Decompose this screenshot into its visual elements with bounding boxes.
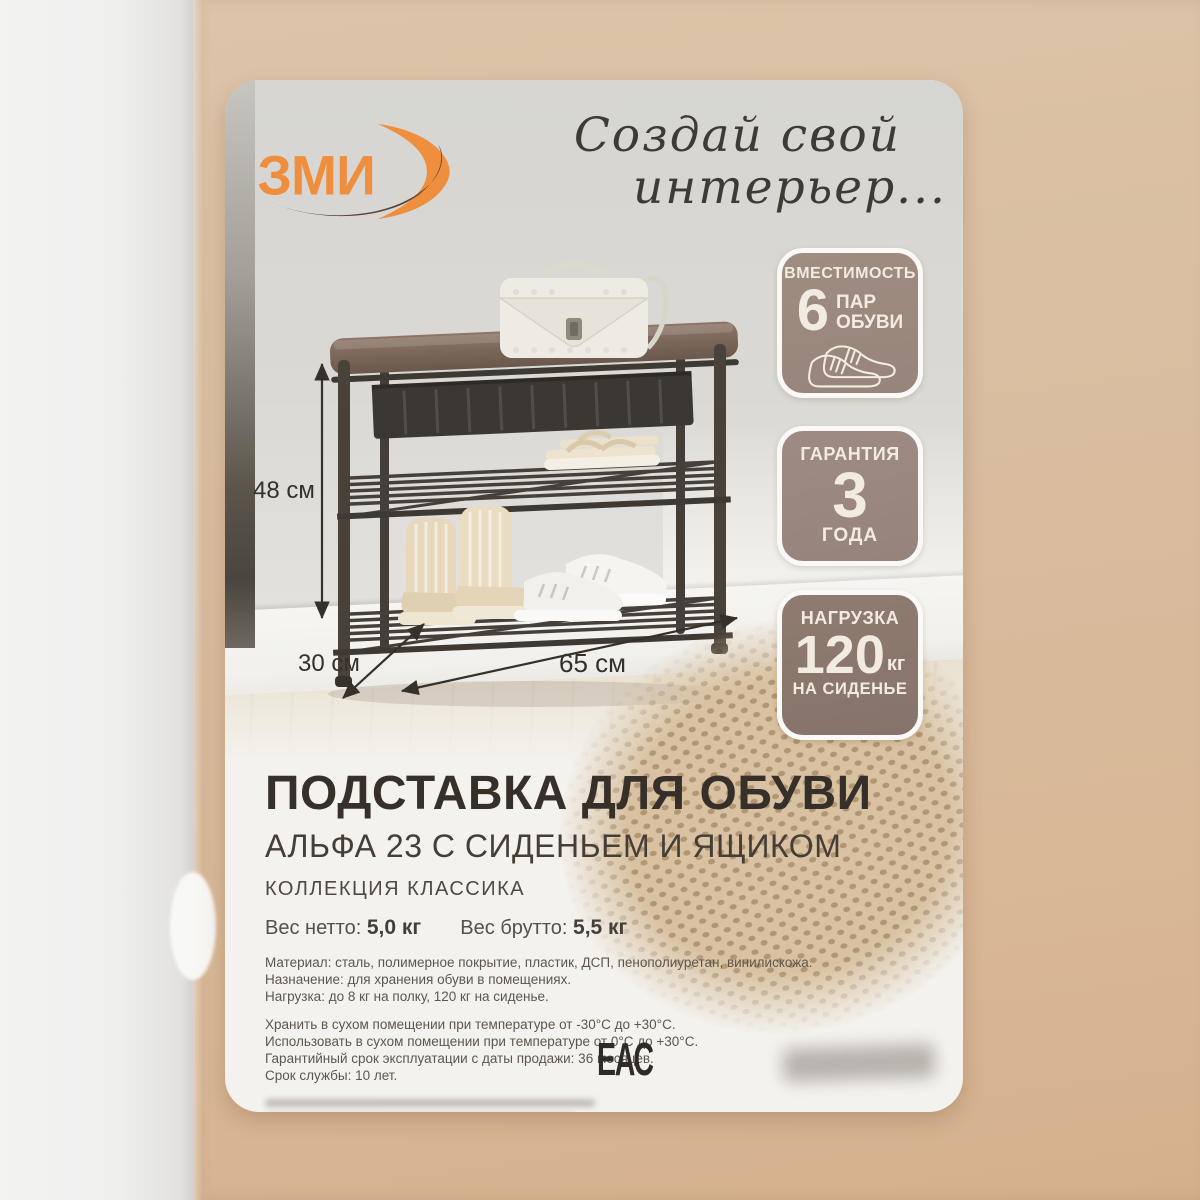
product-subtitle: АЛЬФА 23 С СИДЕНЬЕМ И ЯЩИКОМ — [265, 828, 905, 865]
warranty-badge: ГАРАНТИЯ 3 ГОДА — [777, 426, 923, 566]
product-title: ПОДСТАВКА ДЛЯ ОБУВИ — [265, 768, 905, 820]
product-collection: КОЛЛЕКЦИЯ КЛАССИКА — [265, 878, 905, 901]
product-label: ЗМИ Создай свой интерьер... 48 см 30 см … — [225, 80, 963, 1112]
width-dimension-label: 65 см — [559, 648, 626, 679]
blurred-manufacturer-text — [265, 1099, 905, 1112]
blurred-line — [265, 1099, 595, 1107]
warranty-badge-sub: ГОДА — [782, 525, 918, 547]
load-badge: НАГРУЗКА 120 кг НА СИДЕНЬЕ — [777, 590, 923, 740]
warranty-badge-number: 3 — [782, 466, 918, 524]
load-badge-sub: НА СИДЕНЬЕ — [782, 680, 918, 699]
depth-dimension-label: 30 см — [298, 650, 360, 678]
zmi-logo: ЗМИ — [253, 122, 458, 222]
net-weight-label: Вес нетто: — [265, 917, 361, 939]
bench-middle-shelf — [335, 461, 730, 516]
background-wall — [0, 0, 195, 1200]
shoes-outline-icon — [798, 340, 902, 392]
load-badge-unit: кг — [887, 649, 905, 679]
capacity-badge-line1: ПАР — [836, 293, 903, 313]
spec-load: Нагрузка: до 8 кг на полку, 120 кг на си… — [265, 988, 905, 1005]
product-weights: Вес нетто: 5,0 кг Вес брутто: 5,5 кг — [265, 916, 905, 940]
capacity-badge-number: 6 — [797, 284, 829, 338]
slogan-line2: интерьер... — [574, 162, 947, 214]
boots — [398, 506, 539, 625]
handbag — [500, 265, 666, 358]
blurred-website-text — [782, 1043, 935, 1082]
sandals — [543, 430, 660, 471]
brand-slogan: Создай свой интерьер... — [574, 110, 947, 214]
load-badge-number: 120 — [795, 631, 885, 679]
box-side-sticker — [170, 872, 216, 980]
specs-paragraph: Материал: сталь, полимерное покрытие, пл… — [265, 954, 905, 1005]
care-storage: Хранить в сухом помещении при температур… — [265, 1016, 905, 1033]
box-edge-highlight — [193, 0, 203, 1200]
gross-weight-value: 5,5 кг — [573, 916, 627, 939]
spec-purpose: Назначение: для хранения обуви в помещен… — [265, 971, 905, 988]
gross-weight-label: Вес брутто: — [460, 917, 567, 939]
net-weight-value: 5,0 кг — [367, 916, 421, 939]
capacity-badge-line2: ОБУВИ — [836, 313, 903, 333]
logo-text: ЗМИ — [257, 144, 374, 206]
spec-material: Материал: сталь, полимерное покрытие, пл… — [265, 954, 905, 971]
slogan-line1: Создай свой — [574, 110, 901, 162]
photo-mirror-edge — [225, 80, 255, 648]
eac-certification-mark: ЕАС — [597, 1032, 653, 1086]
capacity-badge: ВМЕСТИМОСТЬ 6 ПАР ОБУВИ — [777, 248, 923, 398]
height-dimension-label: 48 см — [253, 477, 315, 505]
logo-swoosh-orange — [377, 124, 449, 219]
bench-drawer — [372, 371, 694, 439]
